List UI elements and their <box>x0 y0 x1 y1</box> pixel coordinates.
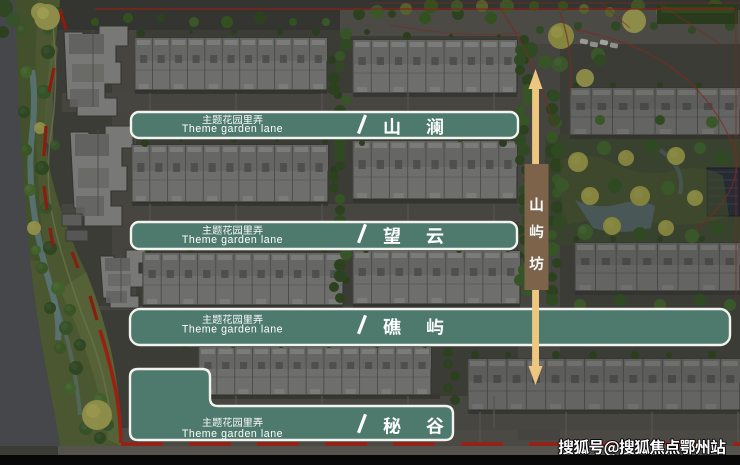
svg-text:Theme garden lane: Theme garden lane <box>182 123 283 135</box>
svg-text:Theme garden lane: Theme garden lane <box>182 323 283 335</box>
svg-text:Theme garden lane: Theme garden lane <box>182 234 283 246</box>
svg-text:Theme garden lane: Theme garden lane <box>182 428 283 440</box>
